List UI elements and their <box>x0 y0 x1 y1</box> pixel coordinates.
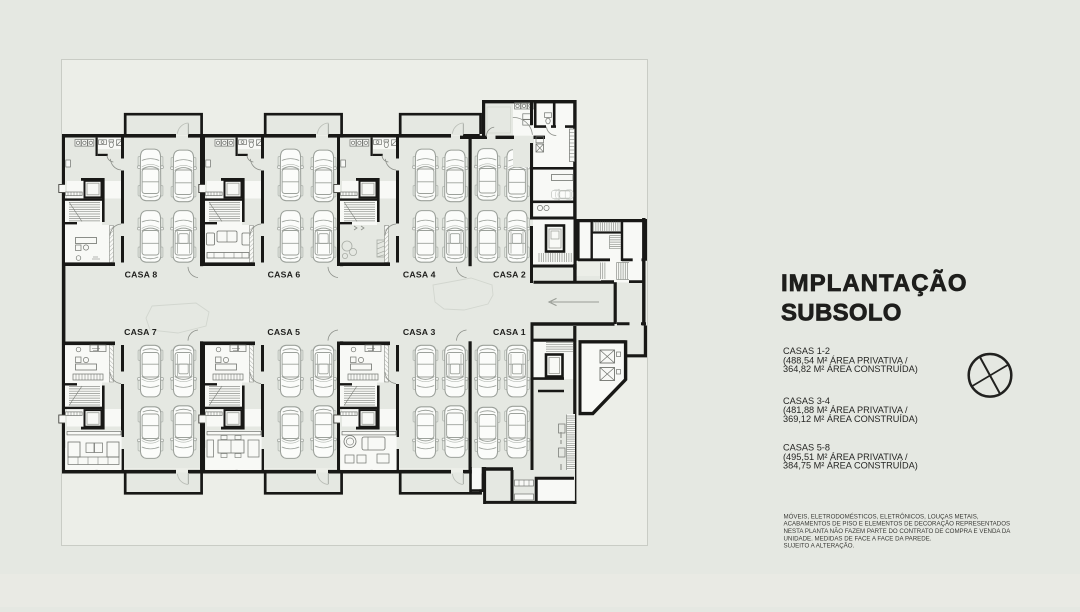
svg-text:CASA 6: CASA 6 <box>268 269 301 279</box>
svg-text:CASA 2: CASA 2 <box>493 269 526 279</box>
svg-text:SUBSOLO: SUBSOLO <box>781 299 902 326</box>
svg-text:CASA 4: CASA 4 <box>403 269 436 279</box>
svg-text:CASA 1: CASA 1 <box>493 327 526 337</box>
svg-text:364,82 M² ÁREA CONSTRUÍDA): 364,82 M² ÁREA CONSTRUÍDA) <box>783 364 918 374</box>
svg-text:IMPLANTAÇÃO: IMPLANTAÇÃO <box>781 269 968 297</box>
svg-text:CASA 7: CASA 7 <box>124 327 157 337</box>
svg-text:CASA 5: CASA 5 <box>267 327 300 337</box>
svg-text:ACABAMENTOS DE PISO E ELEMENTO: ACABAMENTOS DE PISO E ELEMENTOS DE DECOR… <box>784 521 1011 528</box>
svg-text:MÓVEIS, ELETRODOMÉSTICOS, ELET: MÓVEIS, ELETRODOMÉSTICOS, ELETRÔNICOS, L… <box>784 513 979 520</box>
svg-text:CASA 8: CASA 8 <box>125 269 158 279</box>
svg-text:SUJEITO A ALTERAÇÃO.: SUJEITO A ALTERAÇÃO. <box>784 543 855 550</box>
svg-text:NESTA PLANTA NÃO FAZEM PARTE D: NESTA PLANTA NÃO FAZEM PARTE DO CONTRATO… <box>784 528 1012 535</box>
svg-text:369,12 M² ÁREA CONSTRUÍDA): 369,12 M² ÁREA CONSTRUÍDA) <box>783 414 918 424</box>
svg-text:CASA 3: CASA 3 <box>403 327 436 337</box>
svg-text:UNIDADE. MEDIDAS DE FACE A FAC: UNIDADE. MEDIDAS DE FACE A FACE DA PARED… <box>784 535 932 542</box>
svg-text:384,75 M² ÁREA CONSTRUÍDA): 384,75 M² ÁREA CONSTRUÍDA) <box>783 461 918 471</box>
